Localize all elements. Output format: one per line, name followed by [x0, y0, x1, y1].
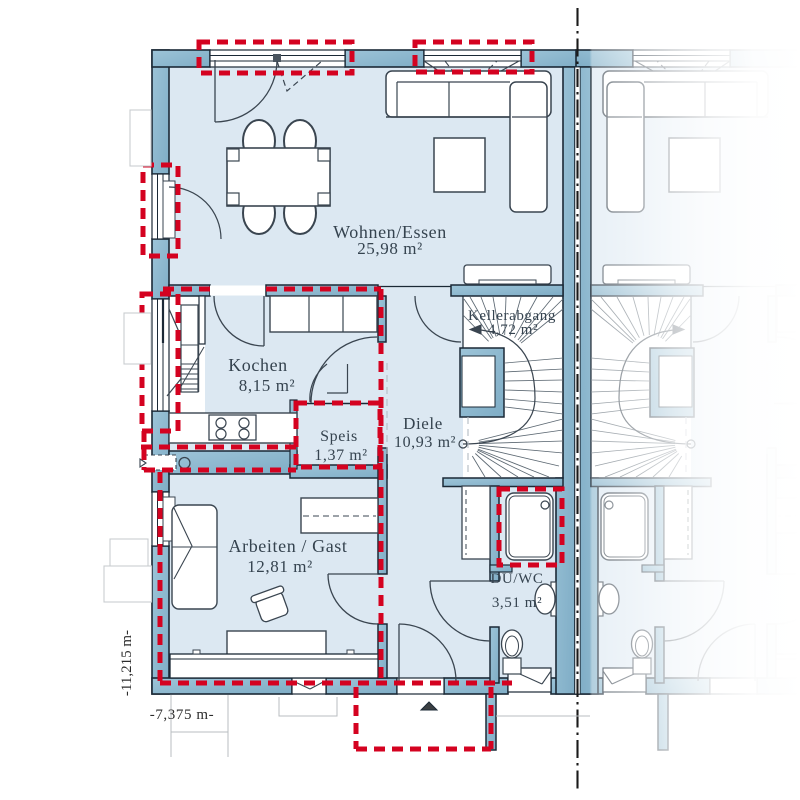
svg-text:Speis: Speis	[320, 428, 358, 445]
svg-text:Arbeiten / Gast: Arbeiten / Gast	[229, 536, 348, 556]
svg-text:DU/WC: DU/WC	[491, 571, 544, 587]
svg-text:-7,375 m-: -7,375 m-	[150, 707, 215, 723]
svg-text:10,93 m²: 10,93 m²	[394, 434, 456, 451]
svg-text:25,98 m²: 25,98 m²	[357, 239, 423, 258]
svg-text:Kochen: Kochen	[228, 355, 288, 375]
svg-text:3,51 m²: 3,51 m²	[492, 595, 542, 611]
svg-text:-11,215 m-: -11,215 m-	[119, 630, 135, 696]
svg-text:4,72 m²: 4,72 m²	[488, 322, 538, 338]
svg-text:1,37 m²: 1,37 m²	[314, 447, 367, 464]
svg-text:12,81 m²: 12,81 m²	[247, 557, 313, 576]
svg-text:Diele: Diele	[403, 414, 443, 433]
svg-text:8,15 m²: 8,15 m²	[239, 376, 296, 395]
